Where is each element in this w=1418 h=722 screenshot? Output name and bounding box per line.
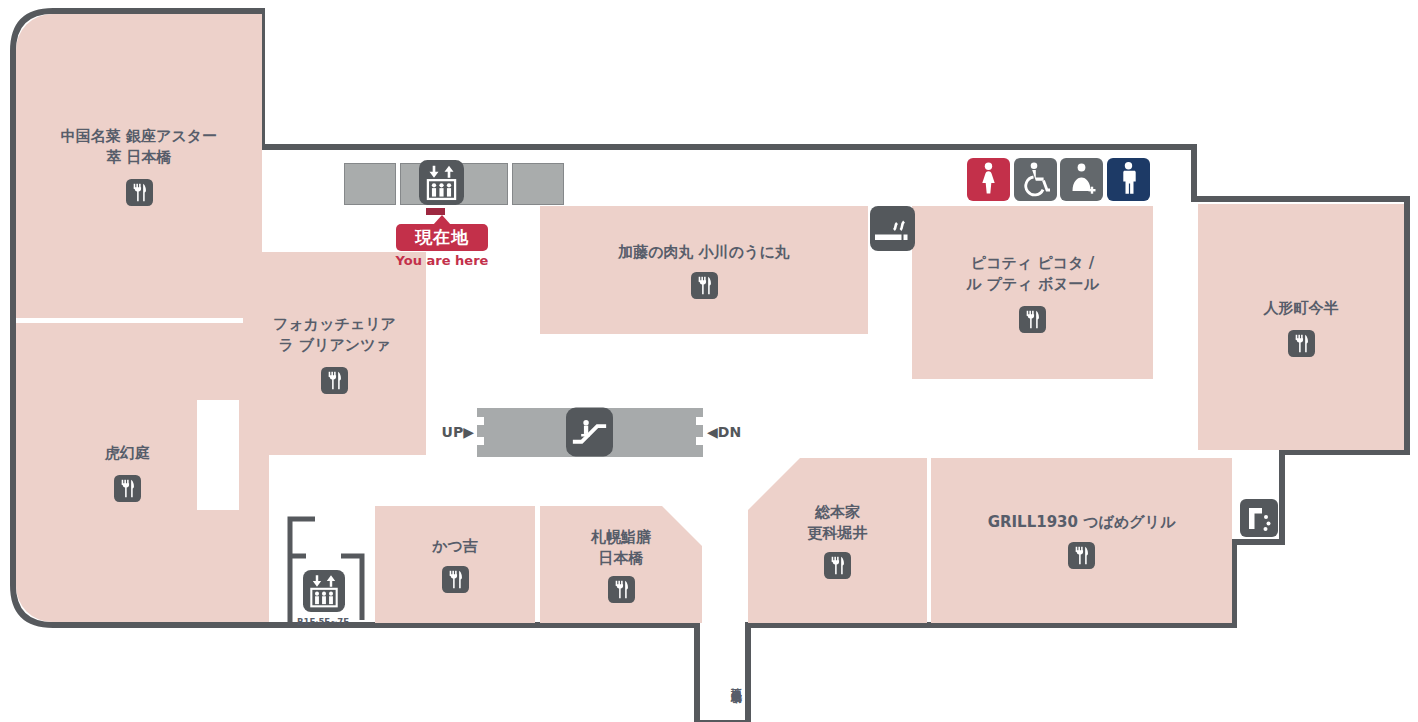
- restaurant-block-nikumaru: 加藤の肉丸 小川のうに丸: [540, 206, 868, 334]
- restaurant-block-imahan: 人形町今半: [1198, 204, 1404, 450]
- restaurant-icon: [126, 179, 153, 206]
- restaurant-icon: [1019, 306, 1046, 333]
- floor-map: 中国名菜 銀座アスター萃 日本橋 虎幻庭 フォカッチェリアラ ブリアンツァ 加藤…: [0, 0, 1418, 722]
- restaurant-icon: [442, 566, 469, 593]
- escalator-down-label: ◀DN: [707, 424, 753, 440]
- restaurant-icon: [1068, 542, 1095, 569]
- restaurant-block-picoti-picota: ピコティ ピコタ /ル プティ ボヌール: [912, 206, 1153, 379]
- restaurant-icon: [824, 552, 851, 579]
- elevator-door: [512, 163, 564, 205]
- restaurant-icon: [114, 475, 141, 502]
- corridor-notch: [197, 400, 239, 510]
- restaurant-name: 加藤の肉丸 小川のうに丸: [618, 242, 790, 263]
- restaurant-block-ginza-aster: 中国名菜 銀座アスター萃 日本橋: [16, 14, 262, 318]
- baby-care-icon: [1060, 158, 1103, 201]
- restaurant-icon: [1288, 330, 1315, 357]
- restaurant-block-focacceria: フォカッチェリアラ ブリアンツァ: [243, 252, 426, 455]
- restaurant-icon: [691, 272, 718, 299]
- restaurant-block-katsukichi: かつ吉: [375, 506, 535, 623]
- restaurant-block-sapporo: 札幌鮨膳日本橋: [540, 506, 702, 623]
- restaurant-name: フォカッチェリアラ ブリアンツァ: [273, 314, 396, 356]
- you-are-here-sublabel: You are here: [390, 253, 494, 268]
- restaurant-icon: [608, 576, 635, 603]
- restaurant-icon: [321, 367, 348, 394]
- restaurant-name: 人形町今半: [1264, 298, 1339, 319]
- drinking-fountain-icon: [1240, 499, 1278, 537]
- restaurant-name: GRILL1930 つばめグリル: [988, 512, 1176, 533]
- womens-toilet-icon: [967, 158, 1010, 201]
- smoking-area-icon: [870, 206, 915, 251]
- restaurant-block-tsubame-grill: GRILL1930 つばめグリル: [931, 458, 1232, 623]
- restaurant-name: 虎幻庭: [105, 443, 150, 464]
- restaurant-name: かつ吉: [432, 536, 478, 557]
- accessible-toilet-icon: [1014, 158, 1057, 201]
- elevator-door: [344, 163, 396, 205]
- restaurant-name: 中国名菜 銀座アスター萃 日本橋: [61, 126, 217, 168]
- elevator-floors-label: B1F·5F~7F: [283, 617, 363, 627]
- restaurant-name: 総本家更科堀井: [808, 502, 868, 544]
- you-are-here-badge: 現在地: [396, 224, 488, 251]
- escalator-up-label: UP▶: [432, 424, 474, 440]
- restaurant-name: ピコティ ピコタ /ル プティ ボヌール: [966, 253, 1099, 295]
- you-are-here-pointer: [426, 208, 445, 215]
- restaurant-name: 札幌鮨膳日本橋: [591, 527, 651, 569]
- elevator-icon: [303, 570, 345, 612]
- elevator-icon: [419, 160, 464, 205]
- escalator-icon: [566, 407, 613, 457]
- subway-corridor-label: 地下鉄日本橋駅: [702, 645, 744, 719]
- mens-toilet-icon: [1107, 158, 1150, 201]
